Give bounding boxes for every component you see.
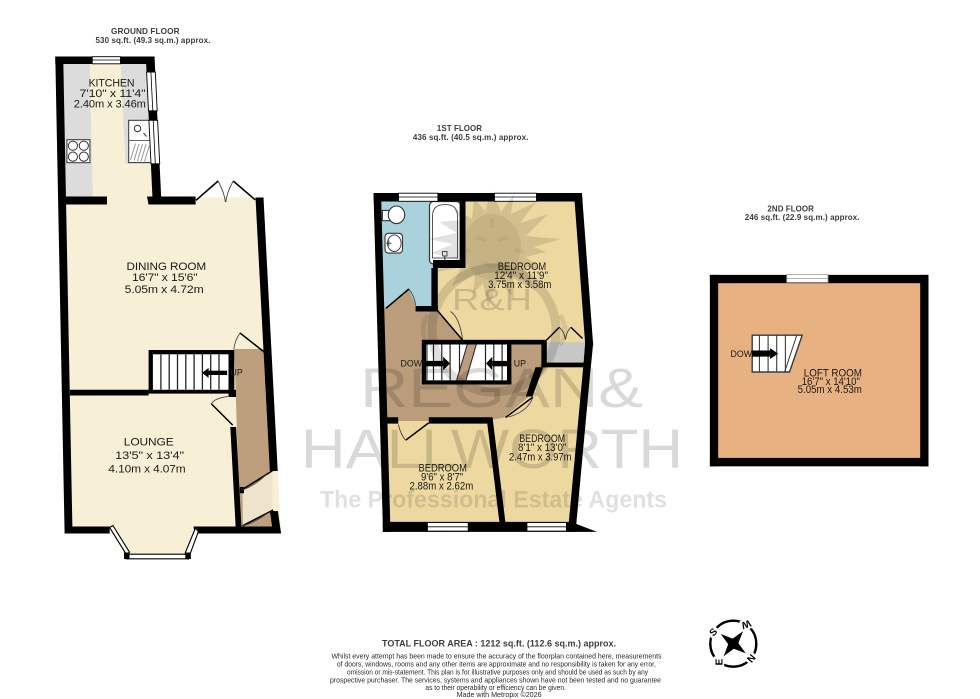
svg-text:246 sq.ft. (22.9 sq.m.) approx: 246 sq.ft. (22.9 sq.m.) approx. — [745, 212, 860, 222]
svg-text:4.10m x 4.07m: 4.10m x 4.07m — [108, 464, 185, 476]
svg-text:TOTAL FLOOR AREA : 1212 sq.ft.: TOTAL FLOOR AREA : 1212 sq.ft. (112.6 sq… — [382, 639, 616, 650]
svg-text:E: E — [715, 658, 726, 665]
svg-text:REGAN&: REGAN& — [360, 356, 643, 419]
svg-text:R&H: R&H — [452, 282, 532, 317]
svg-text:Made with Metropix ©2026: Made with Metropix ©2026 — [457, 690, 542, 699]
svg-text:DINING ROOM: DINING ROOM — [127, 261, 207, 273]
svg-text:HALLWORTH: HALLWORTH — [301, 417, 683, 480]
svg-text:530 sq.ft. (49.3 sq.m.) approx: 530 sq.ft. (49.3 sq.m.) approx. — [96, 35, 211, 45]
svg-text:2.40m x 3.46m: 2.40m x 3.46m — [74, 98, 146, 110]
svg-text:5.05m x 4.72m: 5.05m x 4.72m — [125, 284, 204, 296]
svg-text:5.05m x 4.53m: 5.05m x 4.53m — [798, 384, 862, 396]
svg-text:UP: UP — [231, 368, 243, 378]
svg-text:16'7" x 15'6": 16'7" x 15'6" — [132, 272, 198, 284]
svg-text:LOUNGE: LOUNGE — [124, 437, 174, 449]
svg-text:436 sq.ft. (40.5 sq.m.) approx: 436 sq.ft. (40.5 sq.m.) approx. — [413, 132, 529, 142]
svg-text:13'5" x 13'4": 13'5" x 13'4" — [115, 450, 184, 462]
svg-text:The Professional Estate Agents: The Professional Estate Agents — [320, 487, 667, 514]
